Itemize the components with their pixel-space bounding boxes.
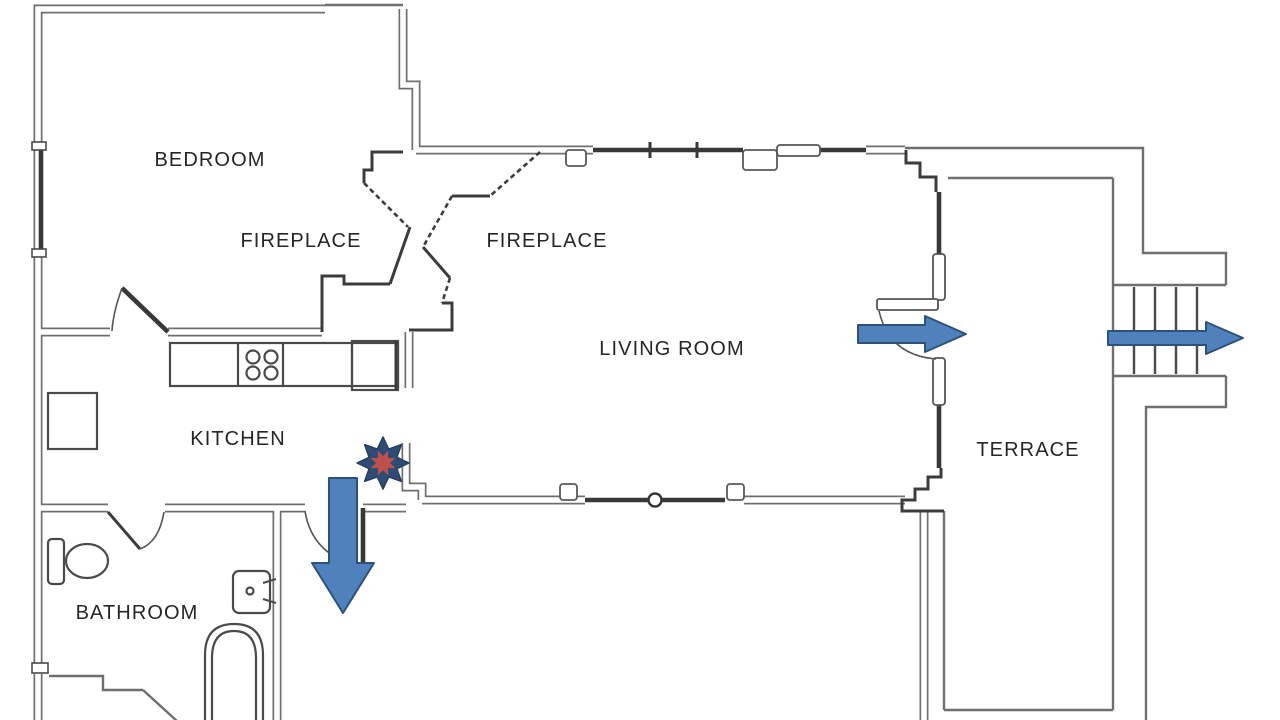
pillar <box>743 150 777 170</box>
pillars-and-windows <box>32 142 945 673</box>
bathroom-door-panel <box>108 512 140 549</box>
lower-room-door-line <box>143 690 178 720</box>
terrace-door-panel <box>877 299 938 310</box>
wall-cap <box>32 663 48 673</box>
bedroom-door-arc <box>112 288 122 331</box>
bathtub-icon <box>205 624 263 720</box>
floor-plan-svg: BEDROOM FIREPLACE FIREPLACE LIVING ROOM … <box>0 0 1280 720</box>
room-label-bedroom: BEDROOM <box>154 149 265 171</box>
evacuation-arrow-terrace-icon <box>858 316 966 352</box>
floor-plan: BEDROOM FIREPLACE FIREPLACE LIVING ROOM … <box>0 0 1280 720</box>
bathroom-fixtures <box>48 539 276 720</box>
pillar <box>560 484 577 500</box>
room-label-living-room: LIVING ROOM <box>599 338 744 360</box>
room-label-fireplace-left: FIREPLACE <box>240 230 361 252</box>
kitchen-window-bay <box>48 393 97 449</box>
cased-window <box>933 358 945 405</box>
cased-window <box>933 254 945 300</box>
kitchen-appliance <box>352 341 398 390</box>
stove-icon <box>247 351 278 380</box>
toilet-icon <box>48 539 108 584</box>
window-center-knob <box>649 494 662 507</box>
fire-origin-star-icon <box>357 437 409 489</box>
sink-icon <box>233 571 276 613</box>
evacuation-arrows <box>312 316 1243 613</box>
terrace-and-exterior-walls <box>49 5 1226 720</box>
room-label-kitchen: KITCHEN <box>190 428 285 450</box>
pillar <box>727 484 744 500</box>
wall-cap <box>32 142 46 150</box>
room-label-bathroom: BATHROOM <box>76 602 199 624</box>
pillar <box>566 150 586 166</box>
room-label-terrace: TERRACE <box>976 439 1079 461</box>
room-label-fireplace-right: FIREPLACE <box>486 230 607 252</box>
bathroom-door-arc <box>140 512 164 549</box>
cased-window <box>777 145 820 156</box>
wall-cap <box>32 249 46 257</box>
